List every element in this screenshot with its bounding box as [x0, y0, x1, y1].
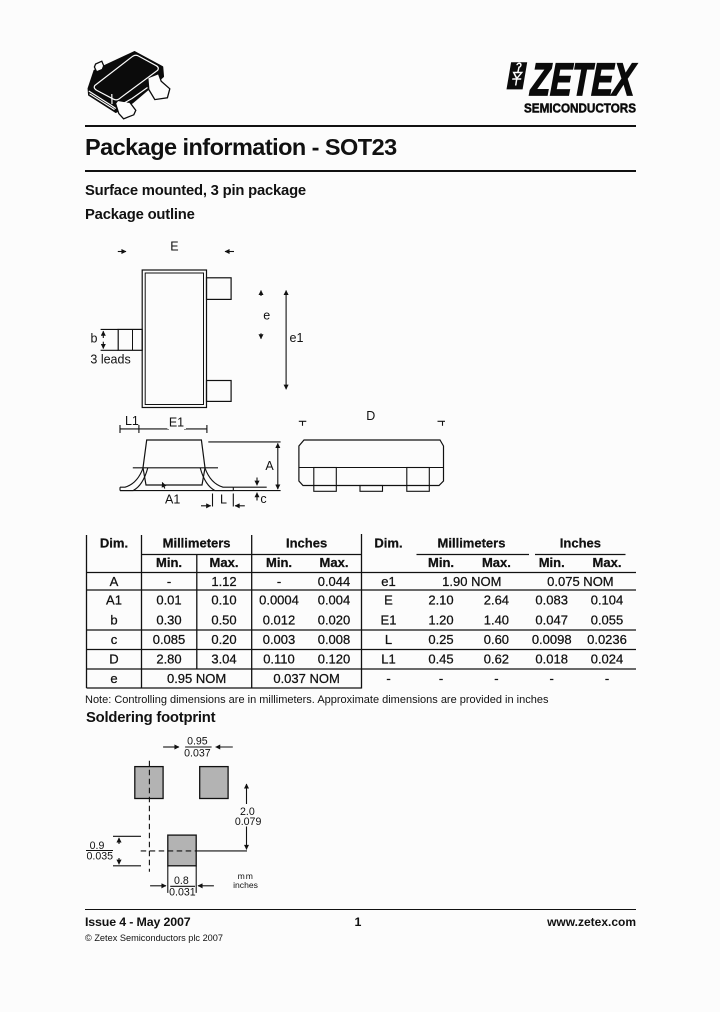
svg-text:E1: E1	[381, 613, 397, 628]
svg-text:SEMICONDUCTORS: SEMICONDUCTORS	[524, 101, 636, 116]
svg-text:0.004: 0.004	[318, 593, 351, 608]
svg-text:-: -	[605, 671, 609, 686]
svg-text:0.047: 0.047	[535, 613, 568, 628]
svg-text:0.95 NOM: 0.95 NOM	[167, 671, 226, 686]
svg-text:Dim.: Dim.	[100, 536, 128, 551]
svg-text:A: A	[110, 574, 119, 589]
svg-text:0.008: 0.008	[318, 632, 351, 647]
svg-text:Inches: Inches	[560, 536, 601, 551]
svg-text:b: b	[110, 613, 117, 628]
svg-text:0.45: 0.45	[428, 652, 453, 667]
svg-text:Min.: Min.	[539, 555, 565, 570]
svg-text:0.055: 0.055	[591, 613, 624, 628]
svg-text:0.0098: 0.0098	[532, 632, 572, 647]
svg-text:0.60: 0.60	[484, 632, 509, 647]
svg-text:Max.: Max.	[320, 555, 349, 570]
svg-text:0.0004: 0.0004	[259, 593, 299, 608]
svg-text:0.044: 0.044	[318, 574, 351, 589]
svg-text:0.120: 0.120	[318, 652, 351, 667]
svg-text:L1: L1	[381, 652, 395, 667]
svg-text:e: e	[110, 671, 117, 686]
svg-text:Millimeters: Millimeters	[438, 536, 506, 551]
svg-text:0.037: 0.037	[184, 747, 211, 759]
svg-text:Max.: Max.	[482, 555, 511, 570]
svg-text:c: c	[260, 492, 266, 506]
svg-text:E: E	[384, 593, 393, 608]
svg-text:Min.: Min.	[266, 555, 292, 570]
svg-text:Inches: Inches	[286, 536, 327, 551]
svg-text:e1: e1	[290, 331, 304, 345]
svg-text:D: D	[109, 652, 118, 667]
svg-text:b: b	[91, 332, 98, 346]
svg-text:-: -	[386, 671, 390, 686]
svg-text:0.037 NOM: 0.037 NOM	[273, 671, 339, 686]
svg-text:2.64: 2.64	[484, 593, 509, 608]
svg-text:0.012: 0.012	[263, 613, 296, 628]
svg-text:0.25: 0.25	[428, 632, 453, 647]
svg-text:-: -	[550, 671, 554, 686]
svg-text:-: -	[167, 574, 171, 589]
svg-text:A1: A1	[106, 593, 122, 608]
svg-text:-: -	[494, 671, 498, 686]
svg-text:1.20: 1.20	[428, 613, 453, 628]
svg-text:0.95: 0.95	[187, 736, 208, 748]
svg-text:0.018: 0.018	[535, 652, 568, 667]
svg-text:0.003: 0.003	[263, 632, 296, 647]
svg-text:0.083: 0.083	[535, 593, 568, 608]
svg-text:E1: E1	[169, 416, 184, 430]
svg-text:2.80: 2.80	[156, 652, 181, 667]
svg-text:1.12: 1.12	[211, 574, 236, 589]
svg-text:3.04: 3.04	[211, 652, 236, 667]
svg-text:0.085: 0.085	[153, 632, 186, 647]
svg-text:ZETEX: ZETEX	[528, 54, 638, 105]
svg-text:e1: e1	[381, 574, 395, 589]
svg-text:Max.: Max.	[593, 555, 622, 570]
svg-text:A: A	[265, 459, 274, 473]
svg-text:0.104: 0.104	[591, 593, 624, 608]
svg-text:1.40: 1.40	[484, 613, 509, 628]
svg-text:0.50: 0.50	[211, 613, 236, 628]
svg-text:0.30: 0.30	[156, 613, 181, 628]
svg-text:0.8: 0.8	[174, 875, 189, 887]
svg-text:-: -	[439, 671, 443, 686]
svg-text:Min.: Min.	[156, 555, 182, 570]
svg-text:0.079: 0.079	[235, 816, 262, 828]
svg-text:inches: inches	[233, 880, 258, 890]
svg-text:-: -	[277, 574, 281, 589]
svg-text:0.20: 0.20	[211, 632, 236, 647]
svg-text:Min.: Min.	[428, 555, 454, 570]
svg-text:0.01: 0.01	[156, 593, 181, 608]
svg-text:L1: L1	[125, 414, 139, 428]
svg-text:0.020: 0.020	[318, 613, 351, 628]
svg-text:3 leads: 3 leads	[90, 353, 130, 367]
svg-text:Millimeters: Millimeters	[163, 536, 231, 551]
svg-text:L: L	[220, 493, 227, 507]
svg-text:Dim.: Dim.	[374, 536, 402, 551]
svg-text:1.90 NOM: 1.90 NOM	[442, 574, 501, 589]
svg-text:0.10: 0.10	[211, 593, 236, 608]
svg-text:Max.: Max.	[210, 555, 239, 570]
svg-text:c: c	[111, 632, 118, 647]
svg-text:D: D	[366, 409, 375, 423]
svg-text:L: L	[385, 632, 392, 647]
svg-text:0.075 NOM: 0.075 NOM	[547, 574, 613, 589]
svg-text:0.024: 0.024	[591, 652, 624, 667]
svg-text:0.031: 0.031	[169, 886, 196, 898]
svg-text:0.0236: 0.0236	[587, 632, 627, 647]
svg-text:A1: A1	[165, 493, 180, 507]
svg-text:0.035: 0.035	[87, 851, 114, 863]
svg-text:0.110: 0.110	[263, 652, 295, 667]
svg-text:e: e	[263, 309, 270, 323]
svg-text:2.10: 2.10	[428, 593, 453, 608]
svg-text:E: E	[170, 239, 178, 253]
svg-text:0.62: 0.62	[484, 652, 509, 667]
